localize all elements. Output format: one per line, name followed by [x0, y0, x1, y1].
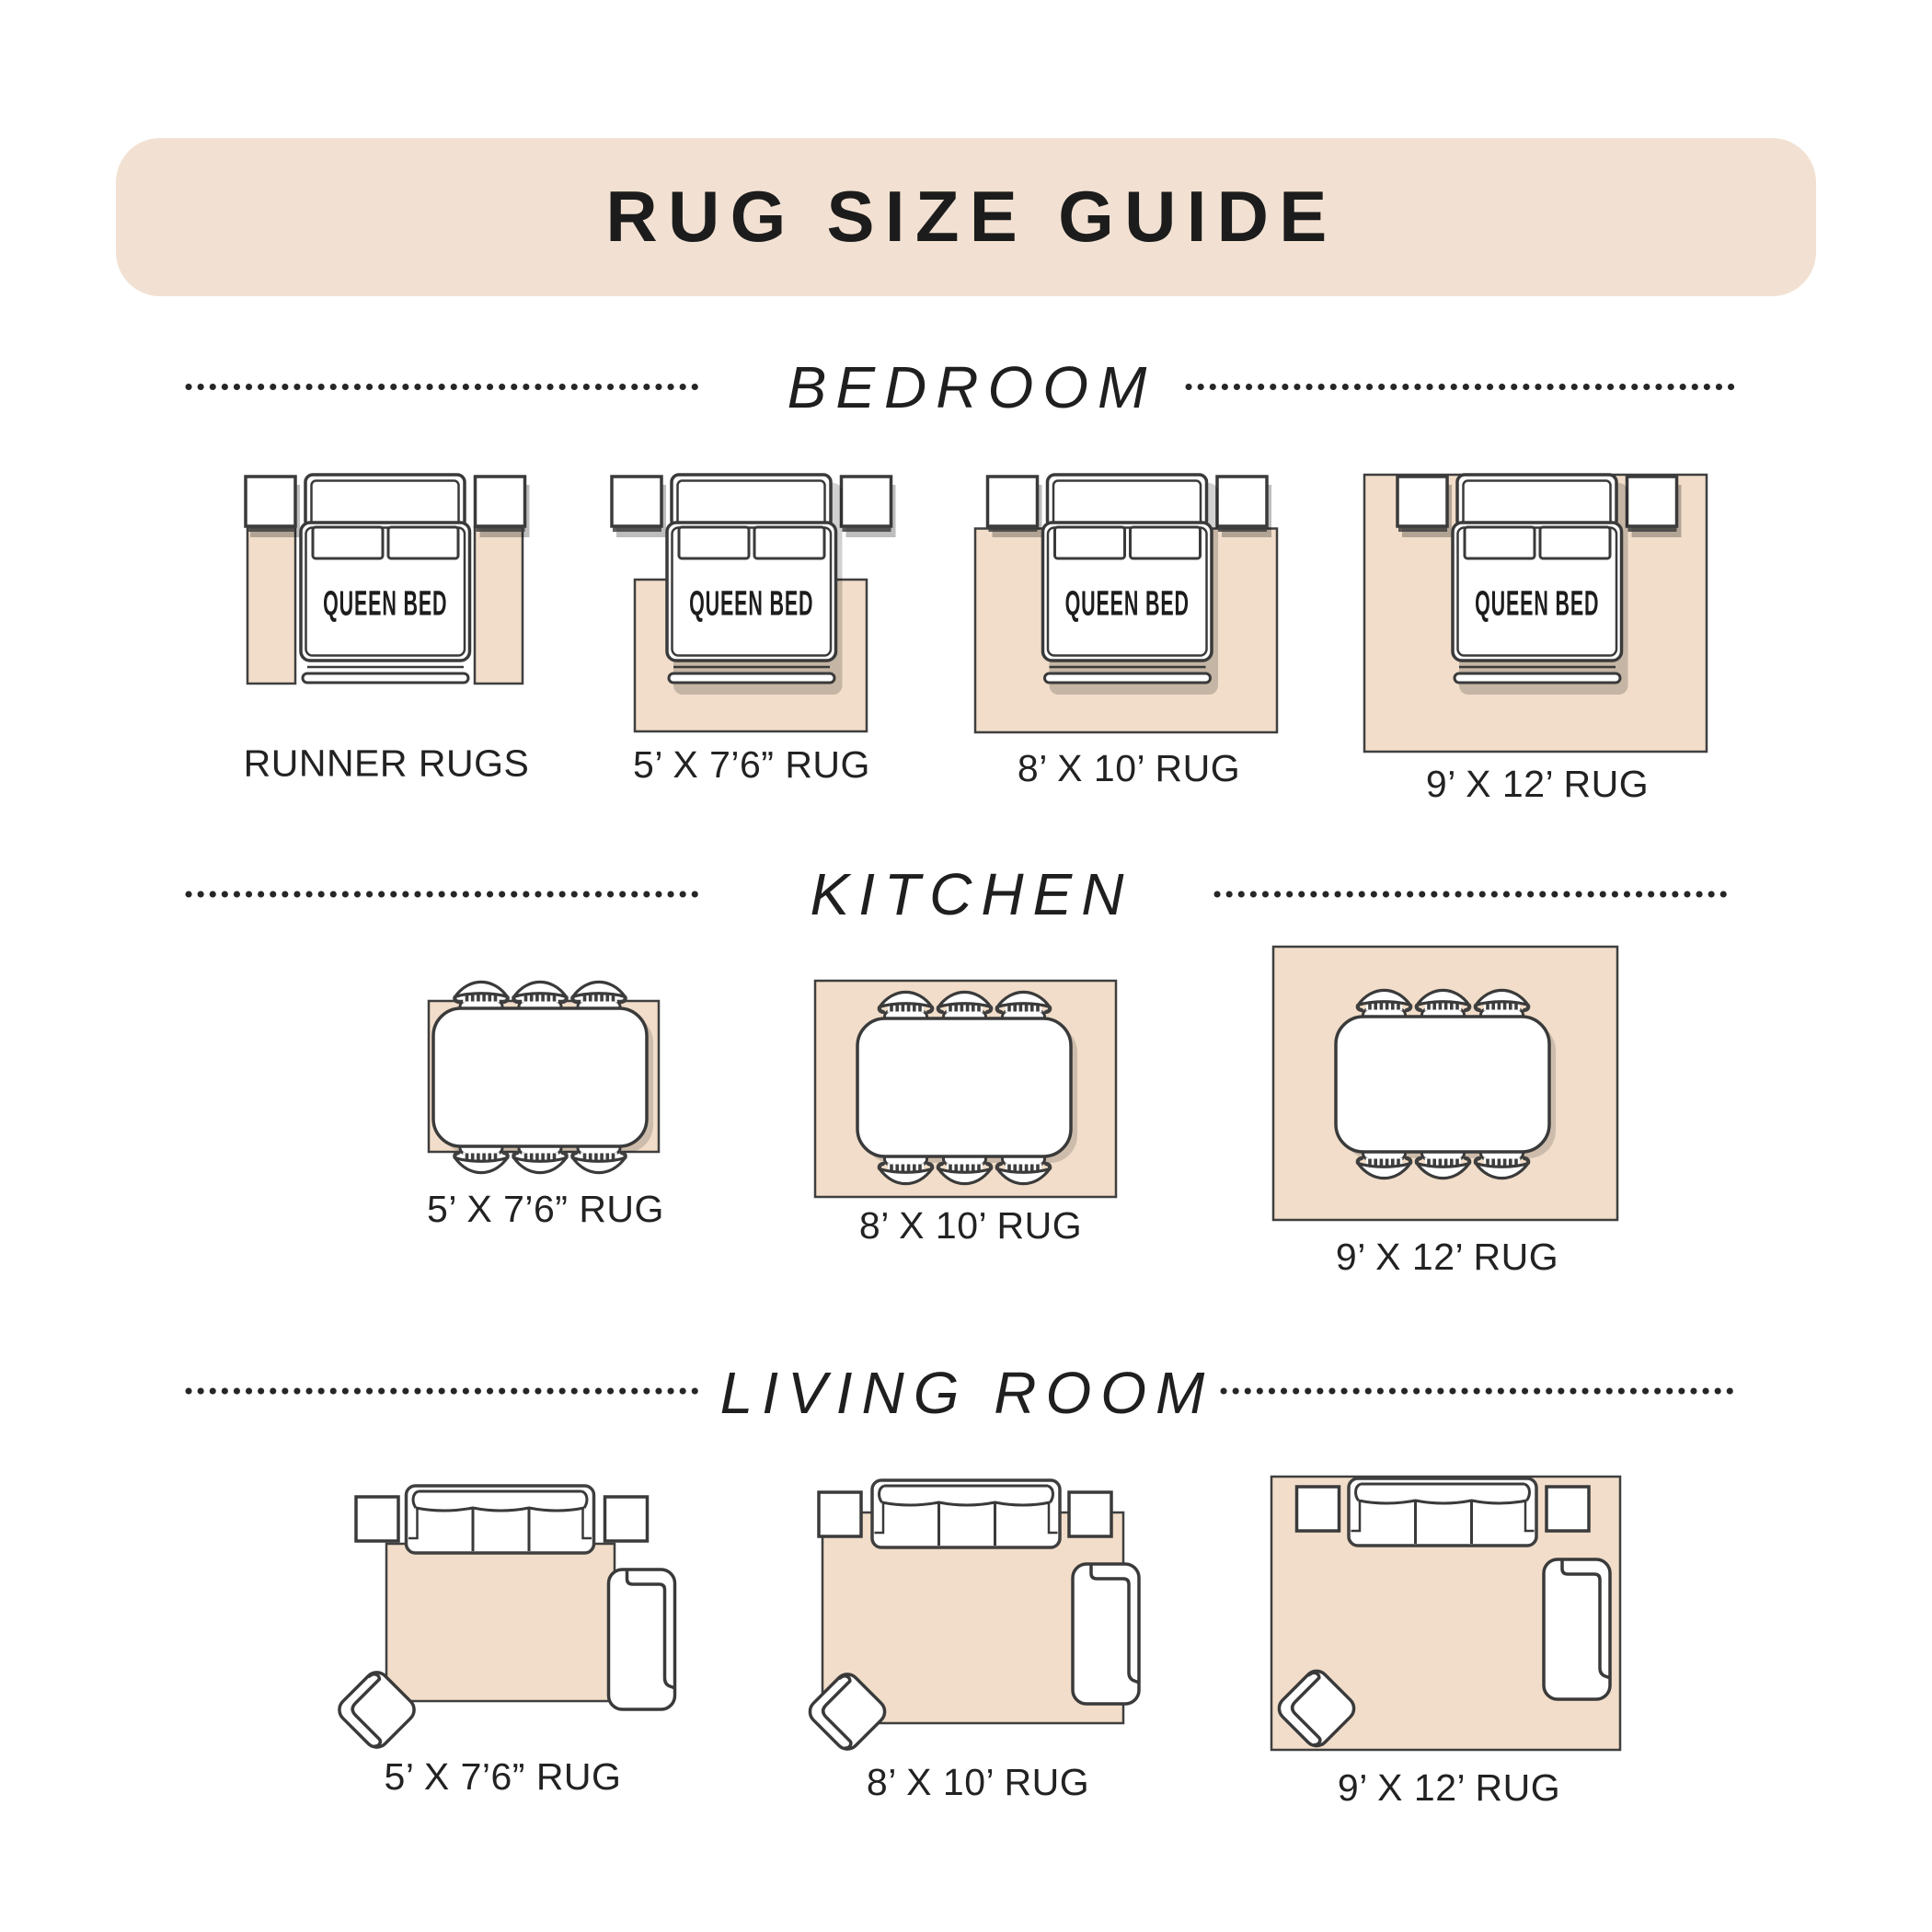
svg-text:8’ X 10’ RUG: 8’ X 10’ RUG — [859, 1204, 1082, 1247]
svg-text:5’ X 7’6” RUG: 5’ X 7’6” RUG — [427, 1188, 664, 1230]
svg-text:BEDROOM: BEDROOM — [788, 354, 1156, 420]
svg-text:5’ X 7’6” RUG: 5’ X 7’6” RUG — [385, 1755, 622, 1798]
svg-text:8’ X 10’ RUG: 8’ X 10’ RUG — [1018, 747, 1240, 789]
svg-text:8’ X 10’ RUG: 8’ X 10’ RUG — [867, 1761, 1089, 1803]
svg-text:9’ X 12’ RUG: 9’ X 12’ RUG — [1426, 763, 1649, 805]
svg-text:RUG SIZE GUIDE: RUG SIZE GUIDE — [605, 176, 1337, 257]
svg-text:KITCHEN: KITCHEN — [811, 861, 1133, 927]
svg-text:9’ X 12’ RUG: 9’ X 12’ RUG — [1338, 1766, 1560, 1809]
svg-text:LIVING ROOM: LIVING ROOM — [720, 1360, 1214, 1426]
svg-text:9’ X 12’ RUG: 9’ X 12’ RUG — [1336, 1236, 1558, 1278]
svg-text:5’ X 7’6” RUG: 5’ X 7’6” RUG — [633, 743, 870, 786]
svg-text:RUNNER RUGS: RUNNER RUGS — [244, 742, 530, 785]
